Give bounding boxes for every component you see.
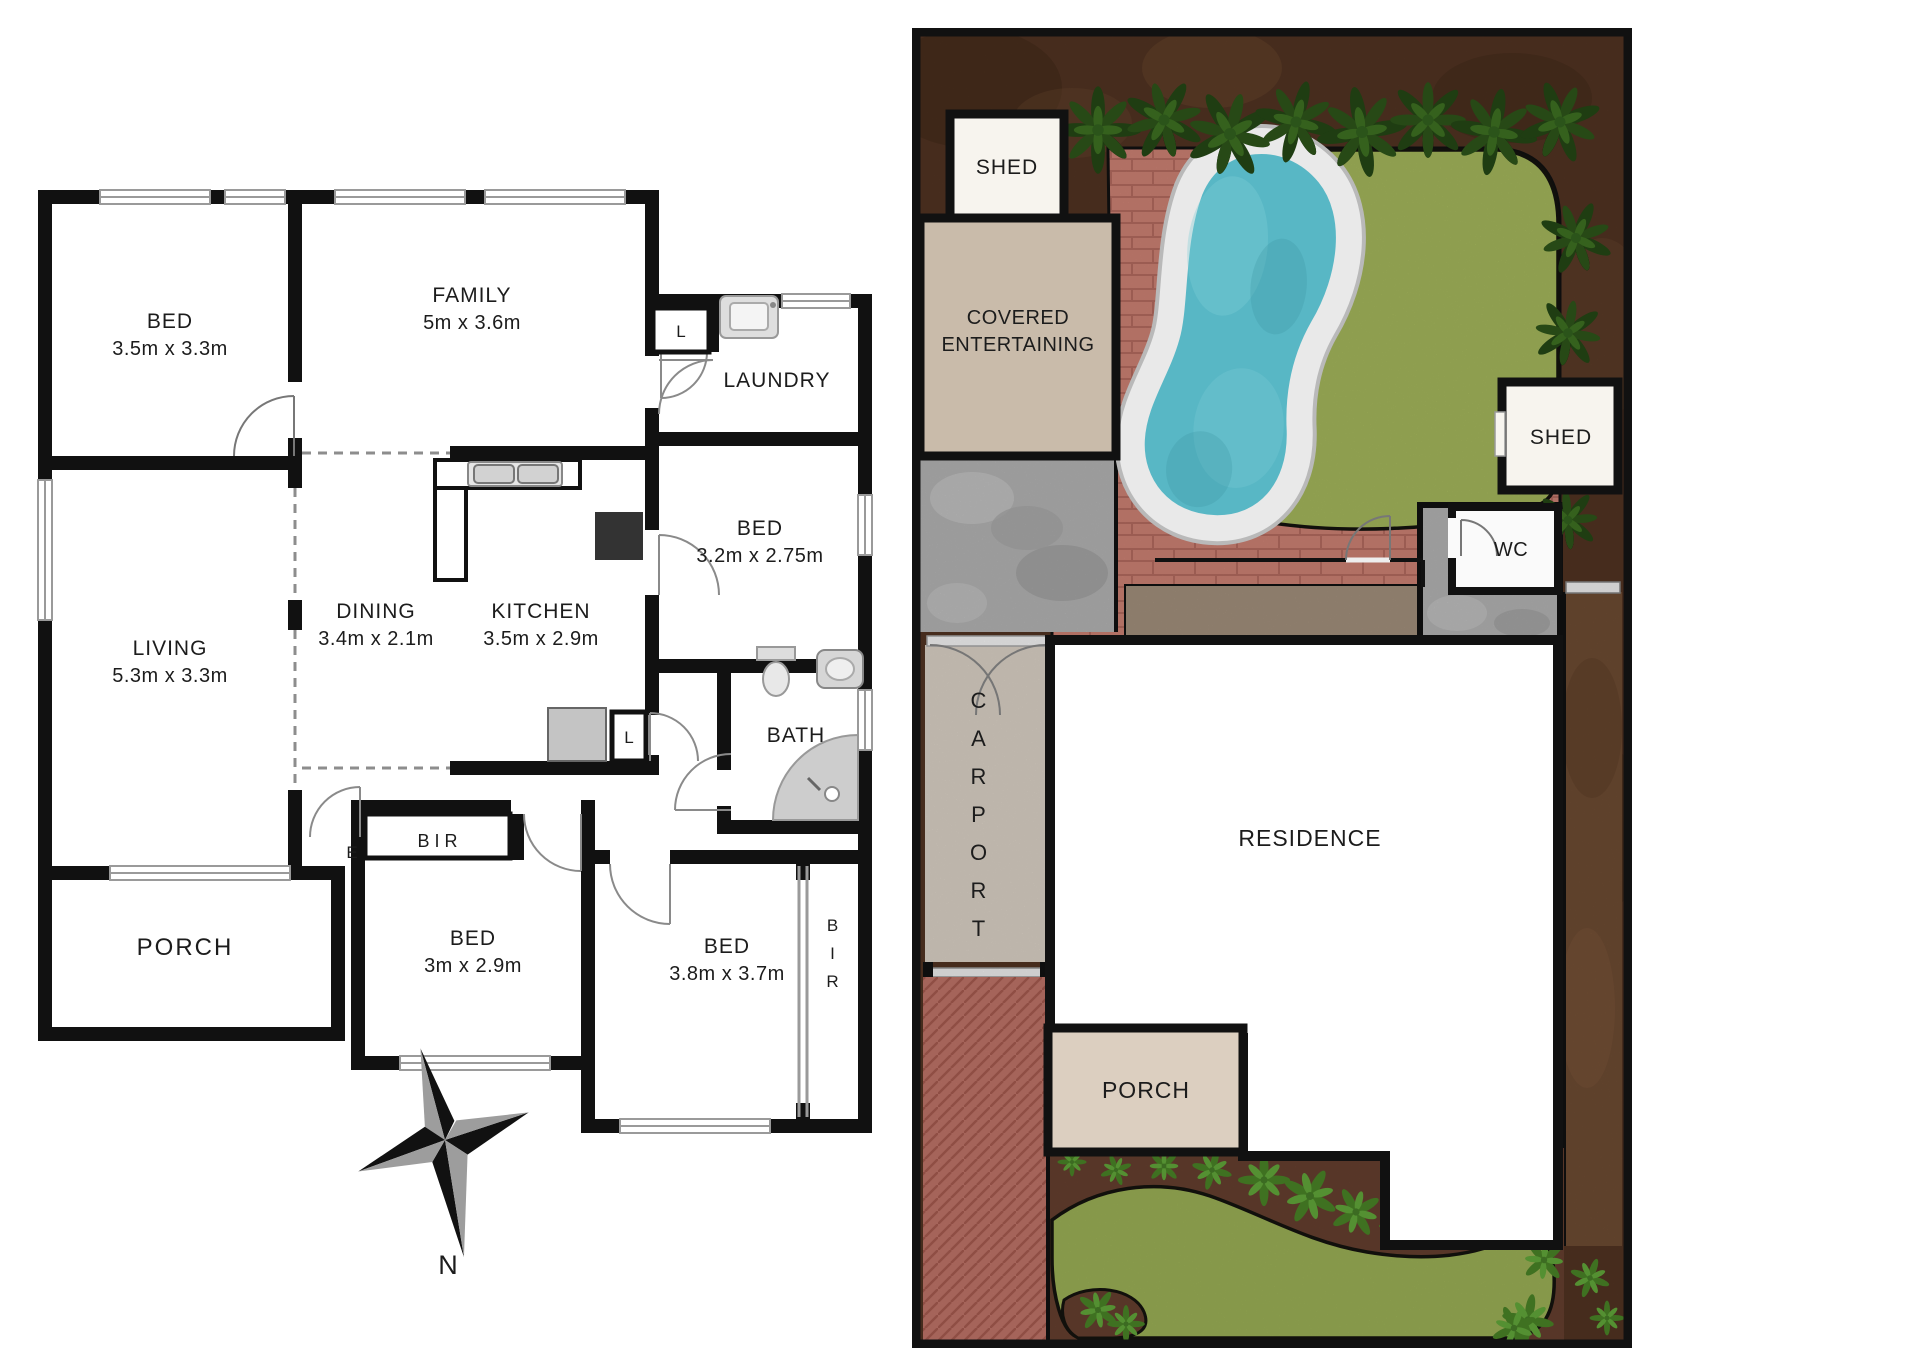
bed4-label: BED [704, 935, 750, 958]
bir-mark: BIR [417, 831, 462, 851]
kitchen-label: KITCHEN [491, 600, 590, 623]
laundry-label: LAUNDRY [724, 369, 831, 392]
carport-label: CARPORT [965, 688, 1009, 948]
shower-icon [773, 735, 858, 820]
north-label: N [438, 1250, 458, 1280]
laundry-fixtures [720, 296, 778, 338]
bed2-dims: 3.2m x 2.75m [696, 545, 823, 567]
living-label: LIVING [133, 637, 208, 660]
shed-right-label: SHED [1530, 426, 1592, 449]
covered-label-1: COVERED [967, 307, 1069, 329]
bed1-dims: 3.5m x 3.3m [112, 338, 228, 360]
linen-mark-1: L [676, 322, 685, 341]
living-dims: 5.3m x 3.3m [112, 665, 228, 687]
wc-label: WC [1494, 539, 1528, 561]
bed1-label: BED [147, 310, 193, 333]
dining-dims: 3.4m x 2.1m [318, 628, 434, 650]
floorplan-page: BED 3.5m x 3.3m FAMILY 5m x 3.6m LAUNDRY… [0, 0, 1920, 1358]
family-label: FAMILY [432, 284, 511, 307]
toilet-icon [757, 647, 795, 660]
dining-label: DINING [336, 600, 416, 623]
kitchen-dims: 3.5m x 2.9m [483, 628, 599, 650]
fridge-icon [595, 512, 643, 560]
covered-label-2: ENTERTAINING [941, 334, 1094, 356]
bed4-dims: 3.8m x 3.7m [669, 963, 785, 985]
residence-label: RESIDENCE [1238, 825, 1381, 851]
linen-mark-2: L [624, 728, 633, 747]
bath-label: BATH [767, 724, 825, 747]
appliance-icon [548, 708, 606, 761]
bir-wardrobe-vertical-label: BIR [822, 898, 850, 1018]
bed3-label: BED [450, 927, 496, 950]
bed2-label: BED [737, 517, 783, 540]
site-plan: SHED COVERED ENTERTAINING SHED WC RESIDE… [912, 28, 1632, 1348]
shed-top-label: SHED [976, 156, 1038, 179]
entry-mark: E [346, 843, 357, 862]
porch-right-label: PORCH [1102, 1077, 1190, 1103]
family-dims: 5m x 3.6m [423, 312, 521, 334]
porch-label: PORCH [137, 934, 234, 961]
bed3-dims: 3m x 2.9m [424, 955, 522, 977]
floor-plan: BED 3.5m x 3.3m FAMILY 5m x 3.6m LAUNDRY… [20, 150, 900, 1300]
